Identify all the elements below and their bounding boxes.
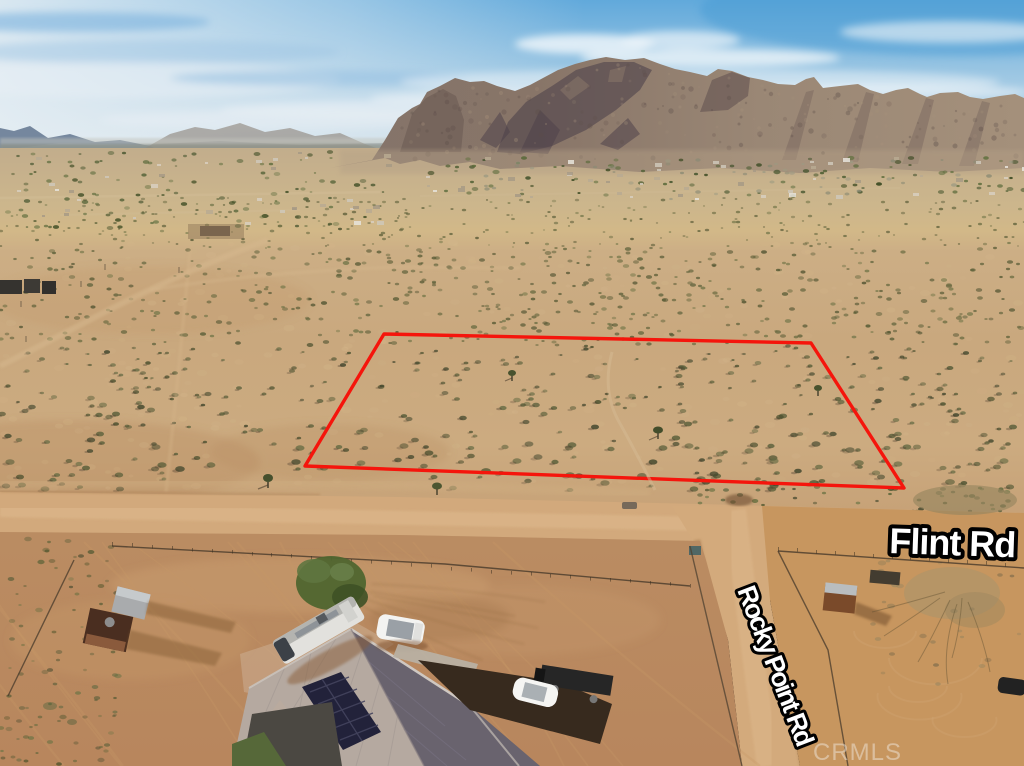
svg-text:CRMLS: CRMLS — [813, 739, 902, 766]
svg-text:Flint Rd: Flint Rd — [889, 520, 1016, 565]
